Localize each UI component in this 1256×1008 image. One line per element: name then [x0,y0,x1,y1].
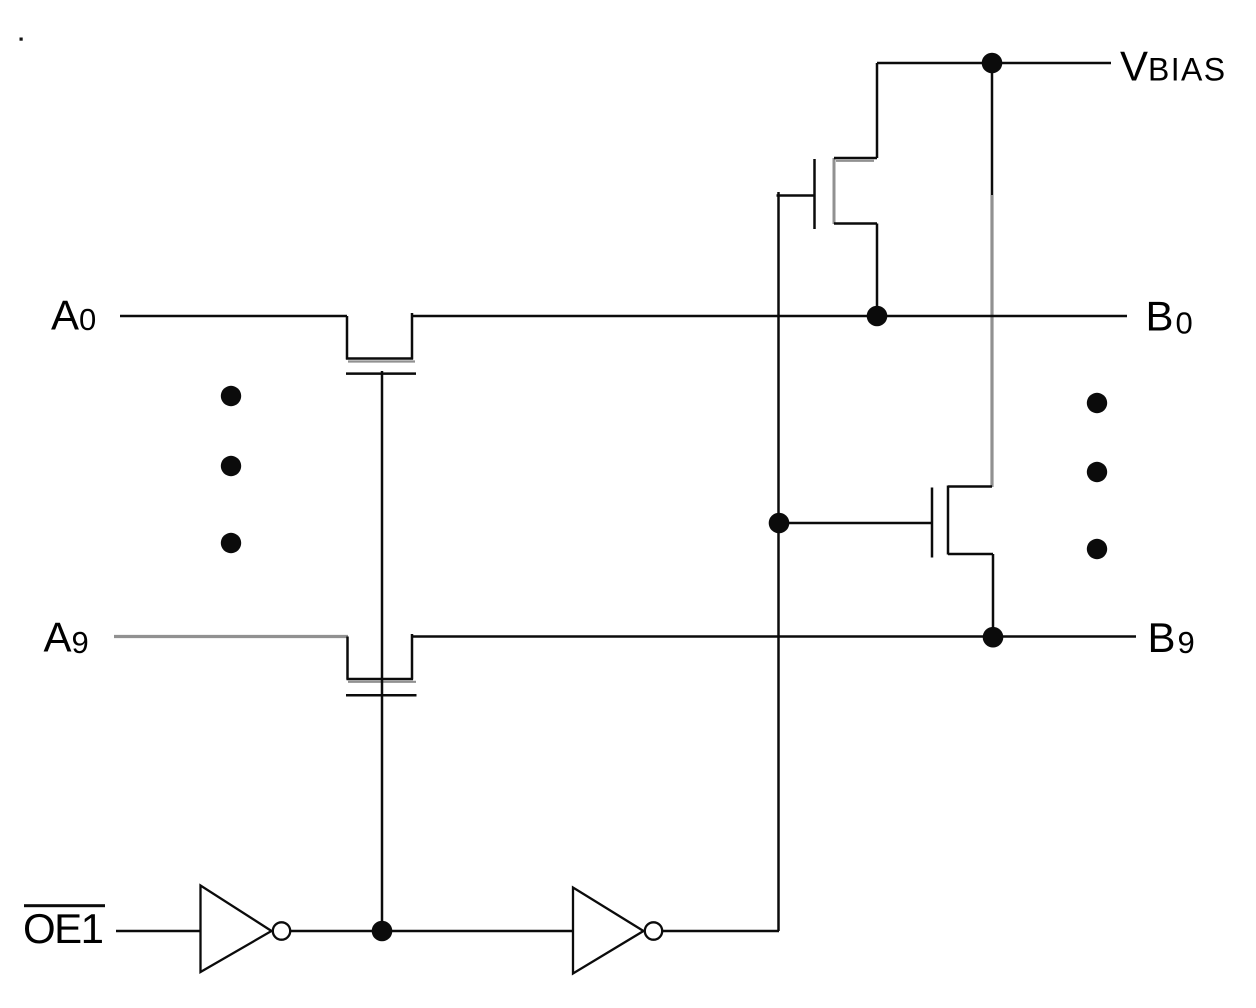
svg-text:VBIAS: VBIAS [1120,43,1227,90]
svg-text:A0: A0 [51,292,96,339]
svg-text:OE1: OE1 [23,905,103,952]
svg-text:B0: B0 [1146,293,1193,341]
svg-text:B9: B9 [1148,614,1195,661]
svg-text:A9: A9 [44,614,89,661]
